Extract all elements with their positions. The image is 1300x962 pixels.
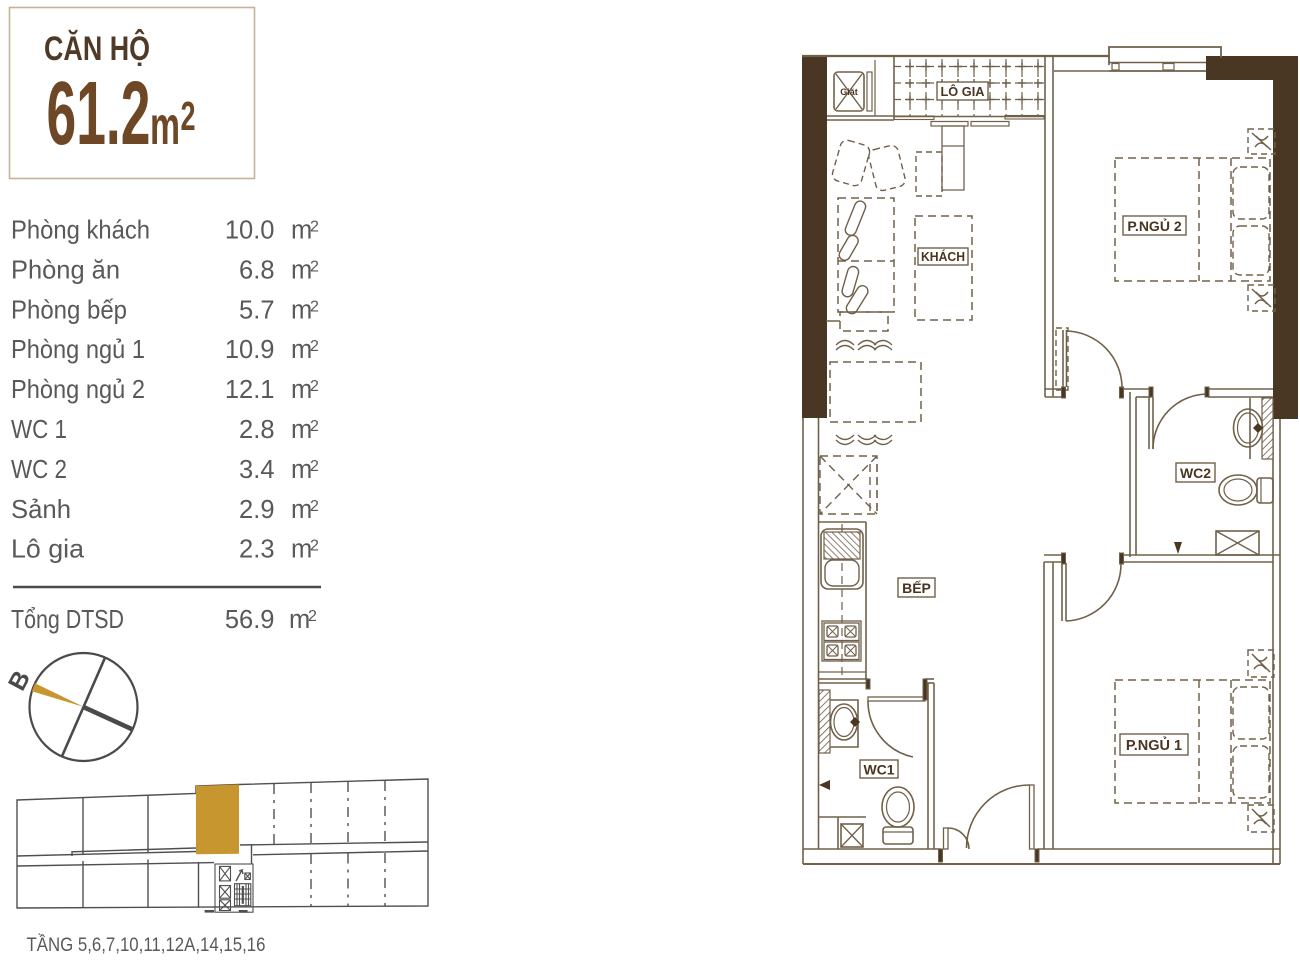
svg-text:CĂN HỘ: CĂN HỘ	[44, 29, 150, 68]
svg-text:2: 2	[310, 538, 319, 555]
svg-text:P.NGỦ 2: P.NGỦ 2	[1127, 217, 1181, 234]
svg-text:2: 2	[310, 458, 319, 475]
svg-text:3.4: 3.4	[239, 456, 274, 484]
svg-text:2: 2	[310, 498, 319, 515]
svg-text:Phòng khách: Phòng khách	[11, 215, 150, 245]
svg-text:10.0: 10.0	[225, 217, 275, 245]
svg-text:2.8: 2.8	[239, 416, 274, 444]
svg-text:Tổng DTSD: Tổng DTSD	[11, 604, 124, 634]
svg-text:P.NGỦ 1: P.NGỦ 1	[1126, 736, 1182, 754]
svg-text:2.3: 2.3	[239, 536, 274, 564]
svg-text:2: 2	[310, 338, 319, 355]
svg-text:2: 2	[310, 418, 319, 435]
svg-text:m: m	[150, 96, 180, 156]
svg-text:Lô gia: Lô gia	[11, 534, 85, 564]
svg-text:6.8: 6.8	[239, 256, 274, 284]
svg-text:LÔ GIA: LÔ GIA	[941, 84, 986, 99]
svg-text:2: 2	[310, 258, 319, 275]
svg-text:2.9: 2.9	[239, 496, 274, 524]
svg-text:WC2: WC2	[1180, 465, 1211, 481]
svg-text:Sảnh: Sảnh	[11, 494, 71, 524]
svg-text:TẦNG 5,6,7,10,11,12A,14,15,16: TẦNG 5,6,7,10,11,12A,14,15,16	[27, 933, 266, 956]
svg-text:WC1: WC1	[863, 762, 894, 778]
svg-text:WC 1: WC 1	[11, 414, 67, 444]
svg-text:10.9: 10.9	[225, 336, 275, 364]
svg-text:Phòng ngủ 2: Phòng ngủ 2	[11, 374, 145, 404]
svg-text:Giặt: Giặt	[840, 87, 858, 97]
svg-text:Phòng ăn: Phòng ăn	[11, 254, 120, 284]
svg-text:12.1: 12.1	[225, 376, 275, 404]
svg-text:2: 2	[181, 93, 196, 139]
svg-text:2: 2	[308, 608, 317, 625]
svg-text:Phòng ngủ 1: Phòng ngủ 1	[11, 334, 145, 364]
svg-text:5.7: 5.7	[239, 296, 274, 324]
svg-text:2: 2	[310, 219, 319, 236]
svg-text:KHÁCH: KHÁCH	[921, 249, 965, 264]
svg-text:2: 2	[310, 298, 319, 315]
svg-text:WC 2: WC 2	[11, 454, 67, 484]
svg-text:61.2: 61.2	[47, 64, 151, 164]
svg-text:Phòng bếp: Phòng bếp	[11, 294, 127, 324]
svg-text:56.9: 56.9	[225, 606, 275, 634]
svg-text:2: 2	[310, 378, 319, 395]
svg-text:BẾP: BẾP	[902, 580, 931, 596]
